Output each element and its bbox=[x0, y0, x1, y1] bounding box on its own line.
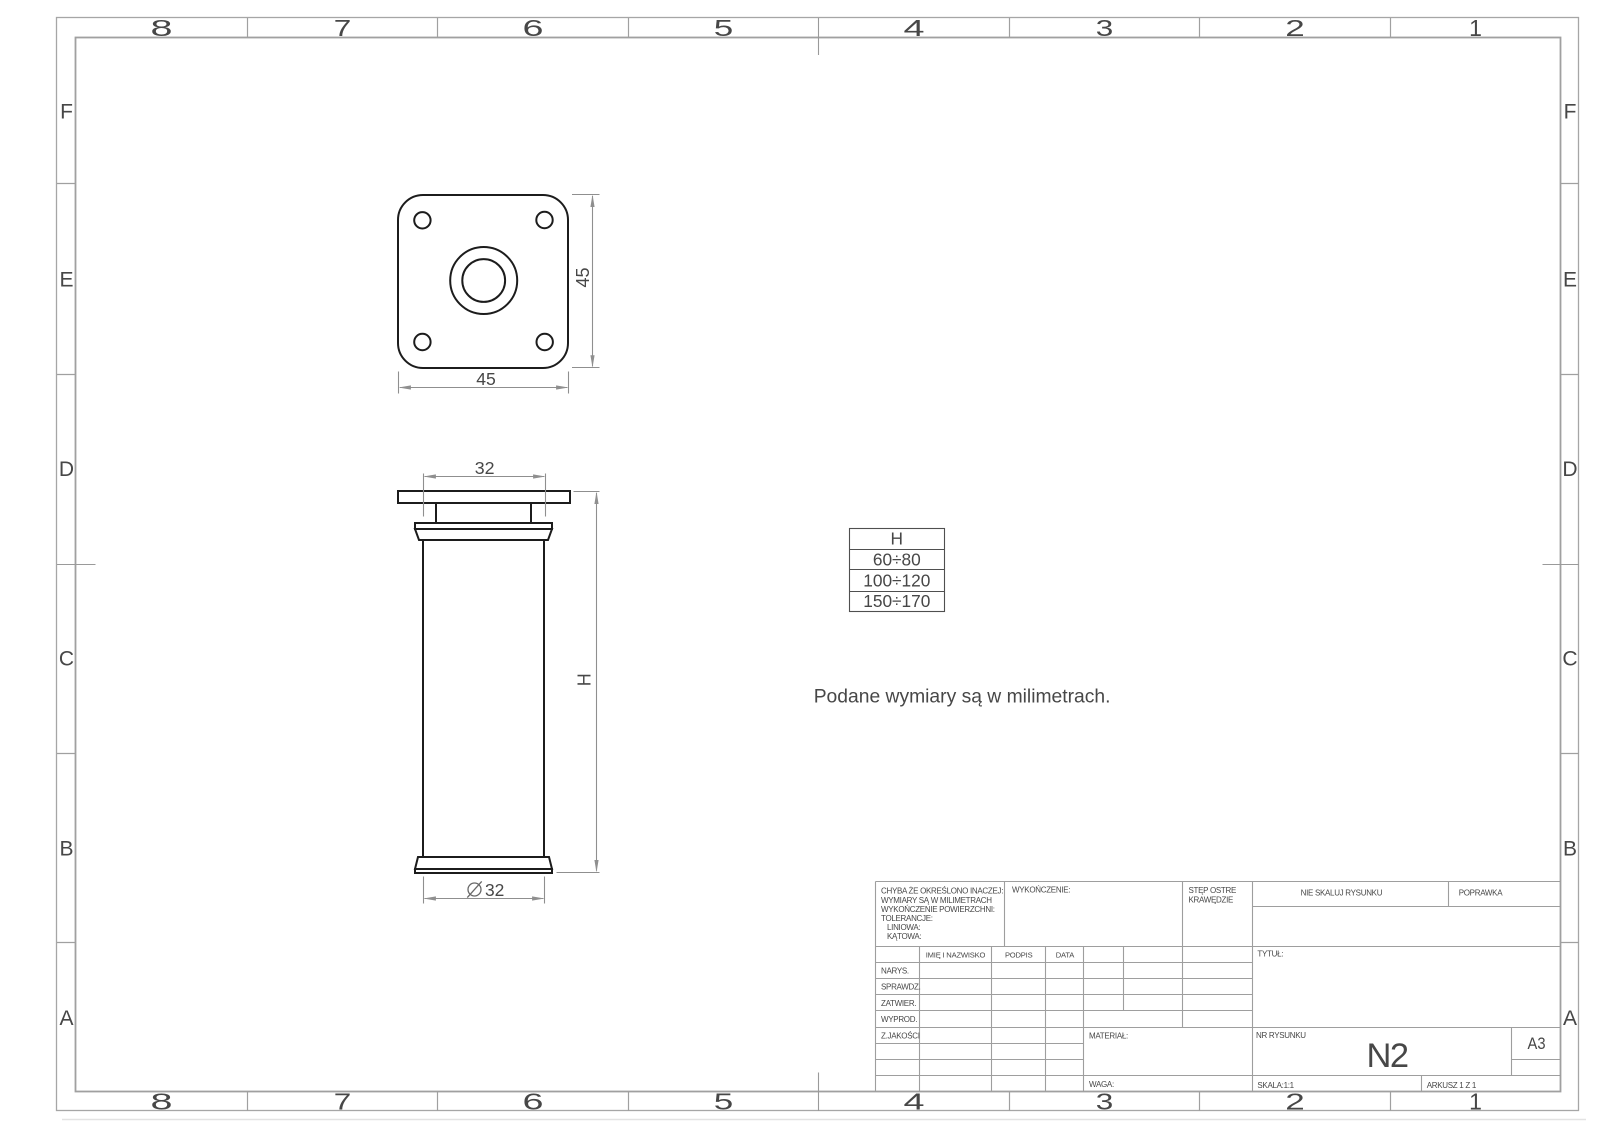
svg-text:45: 45 bbox=[476, 369, 496, 389]
svg-text:5: 5 bbox=[714, 1089, 734, 1115]
svg-text:150÷170: 150÷170 bbox=[863, 591, 930, 611]
svg-text:TOLERANCJE:: TOLERANCJE: bbox=[881, 914, 933, 923]
svg-text:NIE SKALUJ RYSUNKU: NIE SKALUJ RYSUNKU bbox=[1301, 889, 1383, 898]
svg-text:POPRAWKA: POPRAWKA bbox=[1459, 889, 1503, 898]
svg-text:32: 32 bbox=[475, 458, 495, 478]
svg-text:100÷120: 100÷120 bbox=[863, 570, 930, 590]
svg-text:STĘP OSTRE: STĘP OSTRE bbox=[1189, 886, 1237, 895]
svg-text:H: H bbox=[891, 529, 903, 549]
svg-text:NARYS.: NARYS. bbox=[881, 966, 909, 975]
svg-text:MATERIAŁ:: MATERIAŁ: bbox=[1089, 1032, 1128, 1041]
svg-text:B: B bbox=[1563, 837, 1577, 860]
svg-text:F: F bbox=[1564, 101, 1577, 124]
svg-text:F: F bbox=[60, 101, 73, 124]
svg-text:E: E bbox=[1563, 269, 1577, 292]
svg-text:45: 45 bbox=[573, 267, 593, 287]
svg-text:Podane wymiary są w milimetrac: Podane wymiary są w milimetrach. bbox=[814, 687, 1111, 708]
svg-text:TYTUŁ:: TYTUŁ: bbox=[1257, 950, 1283, 959]
svg-text:60÷80: 60÷80 bbox=[873, 550, 921, 570]
svg-text:WYMIARY SĄ W MILIMETRACH: WYMIARY SĄ W MILIMETRACH bbox=[881, 896, 992, 905]
svg-text:IMIĘ I NAZWISKO: IMIĘ I NAZWISKO bbox=[926, 950, 986, 959]
svg-text:C: C bbox=[1562, 648, 1577, 671]
svg-text:8: 8 bbox=[151, 1089, 173, 1115]
svg-text:3: 3 bbox=[1096, 15, 1114, 41]
svg-text:2: 2 bbox=[1285, 1089, 1305, 1115]
svg-text:2: 2 bbox=[1285, 15, 1305, 41]
svg-text:N2: N2 bbox=[1366, 1037, 1407, 1075]
svg-text:CHYBA ŻE OKREŚLONO INACZEJ:: CHYBA ŻE OKREŚLONO INACZEJ: bbox=[881, 886, 1003, 895]
svg-text:A: A bbox=[59, 1007, 73, 1030]
svg-text:4: 4 bbox=[904, 1089, 925, 1115]
svg-text:H: H bbox=[574, 673, 594, 686]
svg-text:Z.JAKOŚCI: Z.JAKOŚCI bbox=[881, 1031, 920, 1040]
svg-text:6: 6 bbox=[523, 15, 544, 41]
svg-text:8: 8 bbox=[151, 15, 173, 41]
svg-text:SKALA:1:1: SKALA:1:1 bbox=[1257, 1081, 1294, 1090]
svg-text:1: 1 bbox=[1469, 15, 1482, 41]
svg-text:1: 1 bbox=[1469, 1089, 1482, 1115]
svg-text:KRAWĘDZIE: KRAWĘDZIE bbox=[1189, 895, 1234, 904]
svg-text:6: 6 bbox=[523, 1089, 544, 1115]
svg-text:7: 7 bbox=[334, 15, 352, 41]
svg-text:3: 3 bbox=[1096, 1089, 1114, 1115]
svg-text:D: D bbox=[1562, 458, 1577, 481]
svg-text:LINIOWA:: LINIOWA: bbox=[887, 923, 920, 932]
svg-text:B: B bbox=[59, 837, 73, 860]
svg-text:C: C bbox=[59, 648, 74, 671]
svg-text:SPRAWDZ.: SPRAWDZ. bbox=[881, 983, 921, 992]
svg-text:A3: A3 bbox=[1528, 1035, 1546, 1053]
svg-text:5: 5 bbox=[714, 15, 734, 41]
svg-text:32: 32 bbox=[485, 880, 504, 900]
svg-text:D: D bbox=[59, 458, 74, 481]
svg-text:ARKUSZ 1 Z 1: ARKUSZ 1 Z 1 bbox=[1427, 1081, 1477, 1090]
svg-text:PODPIS: PODPIS bbox=[1005, 950, 1033, 959]
svg-text:A: A bbox=[1563, 1007, 1577, 1030]
svg-text:NR RYSUNKU: NR RYSUNKU bbox=[1256, 1031, 1306, 1040]
svg-text:DATA: DATA bbox=[1056, 950, 1075, 959]
svg-text:WAGA:: WAGA: bbox=[1089, 1080, 1114, 1089]
svg-text:E: E bbox=[59, 269, 73, 292]
svg-text:WYKOŃCZENIE:: WYKOŃCZENIE: bbox=[1012, 886, 1070, 895]
svg-text:7: 7 bbox=[334, 1089, 352, 1115]
svg-text:4: 4 bbox=[904, 15, 925, 41]
svg-text:ZATWIER.: ZATWIER. bbox=[881, 999, 916, 1008]
svg-text:WYPROD.: WYPROD. bbox=[881, 1015, 917, 1024]
svg-text:WYKOŃCZENIE POWIERZCHNI:: WYKOŃCZENIE POWIERZCHNI: bbox=[881, 905, 995, 914]
svg-text:KĄTOWA:: KĄTOWA: bbox=[887, 932, 921, 941]
